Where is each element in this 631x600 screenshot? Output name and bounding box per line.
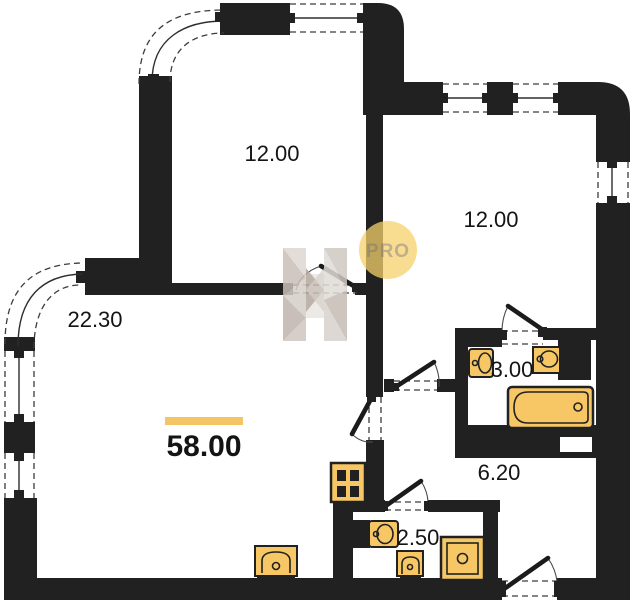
wall-bay-jamb: [76, 271, 86, 283]
builder-logo-icon: [283, 248, 347, 341]
door-bathroom: [499, 306, 547, 344]
bay-window-living: [5, 263, 82, 348]
kitchen-sink-icon: [255, 546, 297, 584]
shower-tray-icon: [441, 537, 484, 580]
window-top-left-room: [286, 4, 366, 32]
total-area-marker: [165, 417, 243, 425]
wall-niche: [560, 437, 592, 452]
door-living-hall: [352, 394, 381, 442]
wall-left-window-pier: [4, 422, 35, 453]
window-right-room-a: [439, 84, 491, 112]
watermark: PRO: [283, 221, 417, 341]
wall-bathroom-stub: [558, 340, 591, 380]
room-label-bedroom-upper-left: 12.00: [244, 141, 299, 166]
wall-bottom-left: [4, 578, 502, 600]
bathtub-icon: [508, 387, 593, 428]
wall-bathroom-top-left: [455, 328, 502, 347]
room-label-bedroom-right: 12.00: [463, 207, 518, 232]
wall-top-right-corner: [558, 82, 630, 162]
total-area-label: 58.00: [166, 430, 241, 463]
window-left-lower: [5, 452, 34, 499]
window-right-room-b: [509, 84, 562, 112]
floor-plan-svg: PRO 12.00 12.00 22.30 3.00 6.20 2.50 58.…: [0, 0, 631, 600]
wall-toilet-backing: [353, 520, 370, 548]
washbasin-wc-icon: [397, 551, 423, 583]
toilet-icon: [469, 349, 493, 377]
wall-top-corner-block: [363, 3, 404, 115]
washbasin-icon: [533, 347, 560, 373]
pro-badge: PRO: [359, 221, 417, 279]
room-label-living-room: 22.30: [67, 307, 122, 332]
wall-below-hall-door: [366, 440, 384, 506]
room-label-hallway: 6.20: [478, 460, 521, 485]
wall-left-lower: [4, 498, 37, 600]
window-right-wall: [598, 159, 628, 205]
wall-left-sill-cap: [4, 337, 35, 351]
ventilation-shaft-icon: [331, 463, 365, 502]
door-entrance: [499, 558, 561, 597]
wall-bottom-right: [557, 578, 630, 600]
room-label-bathroom: 3.00: [491, 357, 534, 382]
wall-right: [596, 203, 630, 600]
wall-divider-slab: [85, 258, 141, 295]
door-wc: [381, 481, 431, 511]
door-bedroom-right: [391, 362, 439, 391]
wall-bathroom-top-right: [543, 328, 596, 340]
wall-top-bay-pier: [220, 3, 290, 35]
pro-badge-text: PRO: [366, 241, 410, 262]
wall-bedroom-left: [139, 76, 172, 295]
toilet-wc-icon: [369, 521, 398, 547]
wall-divider-thin: [170, 283, 293, 295]
wall-top-right-room-left: [400, 82, 443, 115]
bay-window-top-left: [139, 10, 224, 84]
floor-plan-page: PRO 12.00 12.00 22.30 3.00 6.20 2.50 58.…: [0, 0, 631, 600]
room-label-wc: 2.50: [397, 525, 440, 550]
window-left-upper: [5, 349, 34, 423]
